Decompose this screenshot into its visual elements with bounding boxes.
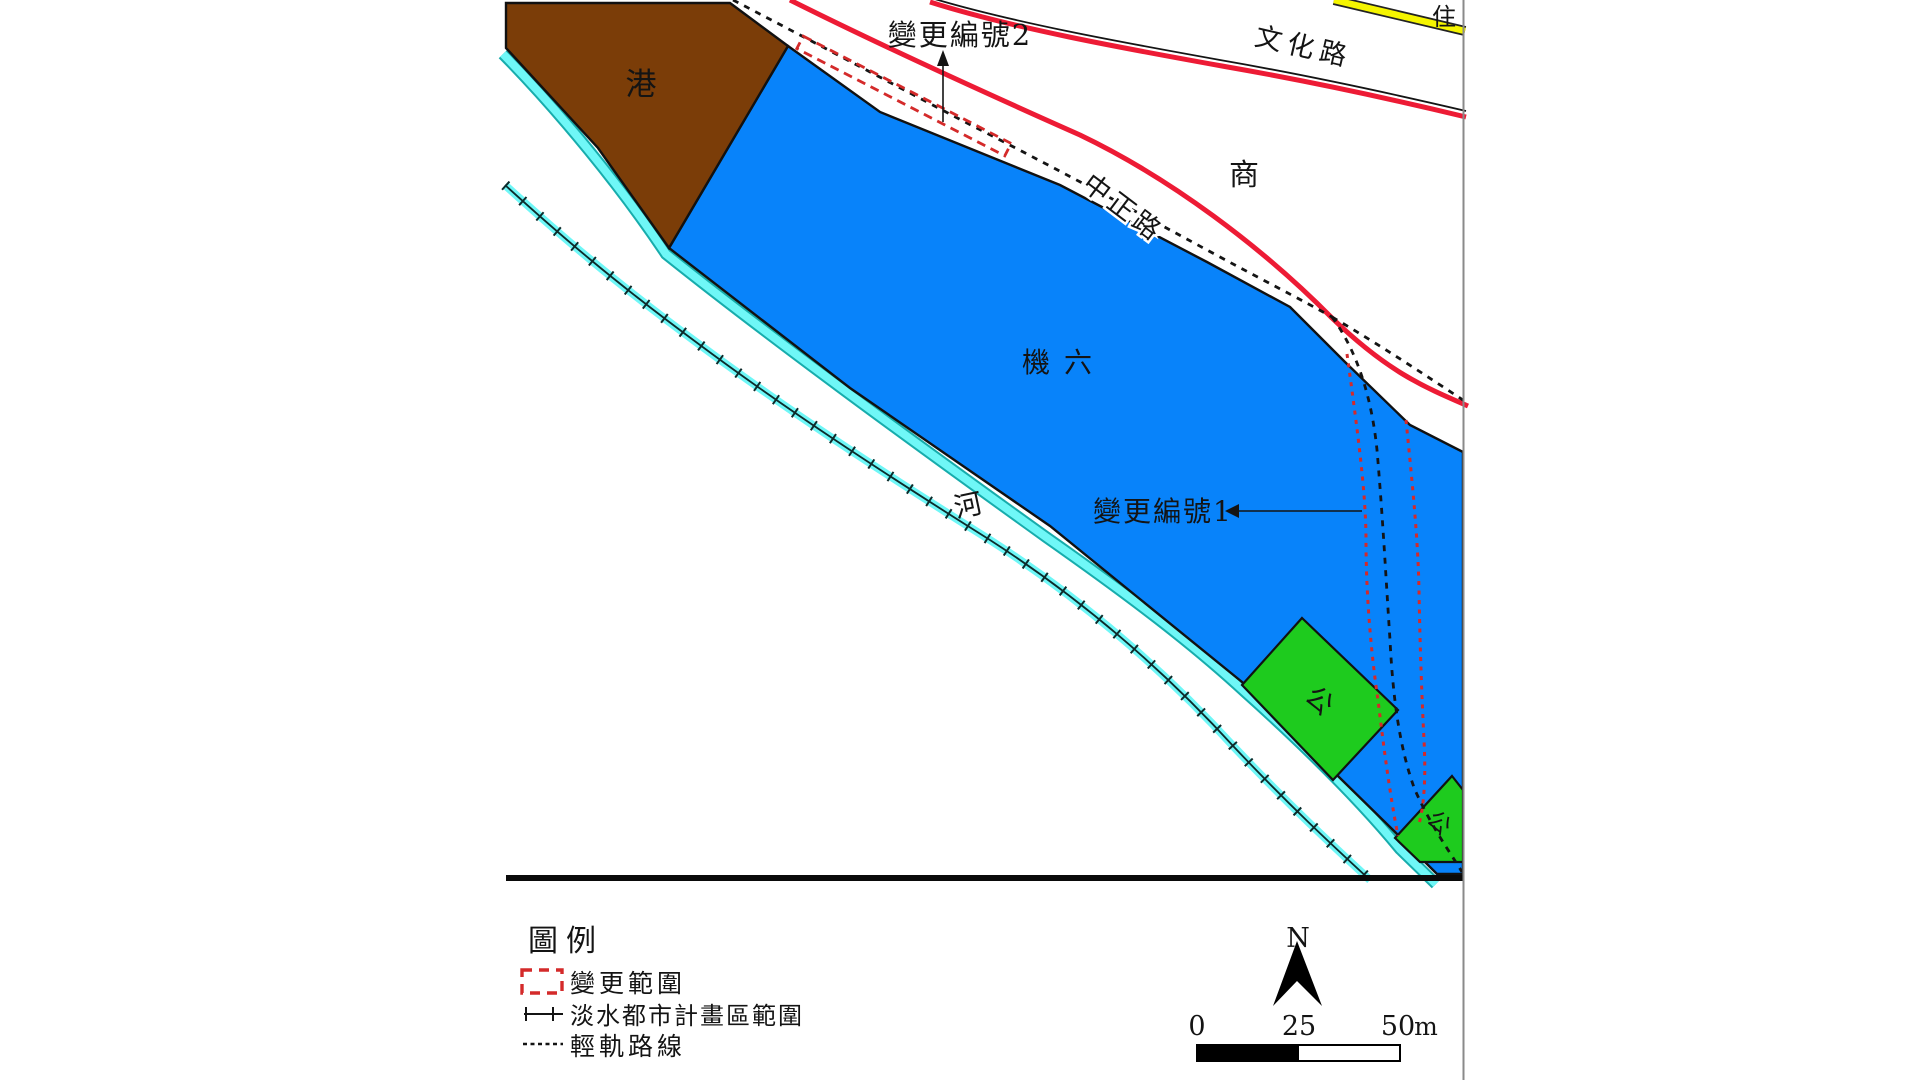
north-arrow-icon [1273, 941, 1322, 1006]
label-residential: 住 [1432, 3, 1456, 31]
legend-symbol-change-area [522, 970, 562, 993]
scale-tick-50: 50 [1381, 1011, 1415, 1042]
legend-label-plan-boundary: 淡水都市計畫區範圍 [570, 1002, 804, 1030]
legend-label-lightrail: 輕軌路線 [570, 1032, 686, 1061]
annotation-change-1-label: 變更編號1 [1093, 495, 1233, 528]
map-page: 港 機六 河 商 住 公 公 中正路 文化路 變更編號2 變更編號1 圖例 變更… [0, 0, 1920, 1080]
map-canvas: 港 機六 河 商 住 公 公 中正路 文化路 變更編號2 變更編號1 圖例 變更… [0, 0, 1920, 1080]
scale-tick-0: 0 [1188, 1011, 1205, 1042]
legend-title: 圖例 [528, 924, 604, 959]
legend-symbol-plan-boundary [524, 1007, 563, 1021]
label-port: 港 [626, 67, 657, 103]
label-airport: 機六 [1022, 346, 1106, 379]
annotation-change-2-arrowhead [937, 50, 949, 66]
label-commercial: 商 [1229, 158, 1259, 193]
scale-unit: m [1414, 1012, 1438, 1041]
scale-tick-25: 25 [1282, 1011, 1316, 1042]
annotation-change-2-label: 變更編號2 [888, 18, 1032, 52]
legend-label-change-area: 變更範圍 [570, 969, 686, 998]
label-wenhua-road: 文化路 [1252, 21, 1355, 73]
scale-bar-filled-segment [1197, 1045, 1298, 1061]
